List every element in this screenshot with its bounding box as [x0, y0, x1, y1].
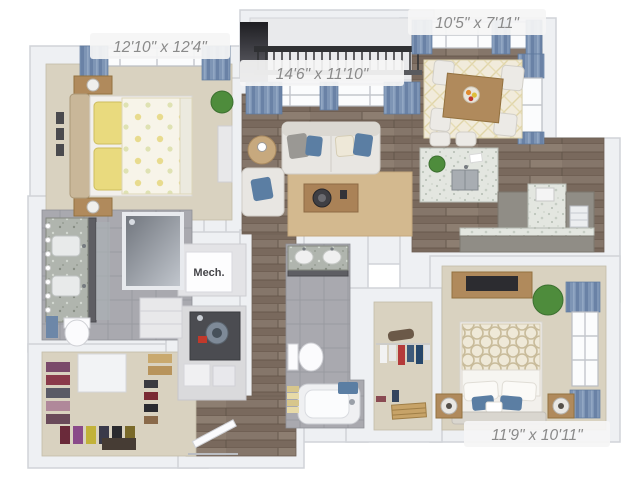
- bar-stool-1: [430, 132, 450, 146]
- label-dining: 10'5" x 7'11": [408, 9, 546, 35]
- sofa-back: [282, 122, 380, 136]
- washer-dryer: [190, 312, 240, 360]
- entry-floor: [186, 396, 296, 456]
- label-text-bedroom2: 11'9" x 10'11": [491, 427, 584, 444]
- master-faucet-2: [82, 284, 86, 288]
- balcony-railing-top: [254, 46, 422, 52]
- main-toilet-bowl: [299, 343, 323, 371]
- armchair: [242, 168, 284, 216]
- master-bed-headboard: [70, 94, 90, 198]
- closet-shoe-bench: [102, 438, 136, 450]
- master-pillow-2: [94, 148, 124, 190]
- bathtub-inner: [305, 390, 349, 418]
- master-sink-1: [52, 236, 80, 256]
- master-toilet-bowl: [65, 320, 89, 346]
- main-toilet-tank: [288, 344, 298, 370]
- bathtub-towel: [338, 382, 358, 394]
- shower: [124, 214, 182, 288]
- closet2-bench-top: [392, 403, 427, 419]
- main-faucet-1: [302, 247, 305, 250]
- living-curtain-middle: [320, 82, 338, 110]
- label-text-master: 12'10" x 12'4": [113, 39, 208, 56]
- coffee-table-tray-inner: [318, 194, 326, 202]
- floorplan-svg: Mech. 12'10" x 12'4" 14'6" x 11'10" 10'5…: [0, 0, 640, 480]
- mech-label: Mech.: [193, 267, 224, 279]
- microwave: [536, 188, 554, 201]
- master-bath-towels: [46, 316, 58, 338]
- closet2-bench: [392, 403, 427, 419]
- closet2-item-2: [392, 390, 399, 402]
- master-duvet-fold: [180, 98, 192, 194]
- master-lamp-bottom: [87, 201, 99, 213]
- coffee-cup: [258, 143, 267, 152]
- label-master-bedroom: 12'10" x 12'4": [90, 33, 230, 59]
- master-faucet-1: [82, 244, 86, 248]
- living-curtain-right: [384, 82, 420, 114]
- mech-room: Mech.: [186, 252, 232, 292]
- bedroom2-duvet: [462, 324, 540, 370]
- bedroom2-lamp-right-center: [558, 403, 564, 409]
- washer-dial: [197, 315, 203, 321]
- bedroom2-pillow-blue-right: [499, 395, 522, 411]
- sofa-pillow-pattern: [335, 135, 355, 156]
- main-sink-1: [295, 250, 313, 264]
- shower-head: [129, 219, 135, 225]
- coffee-table: [304, 184, 358, 212]
- closet2-item-1: [376, 396, 386, 402]
- tv: [466, 276, 518, 291]
- bedroom2-plant: [533, 285, 563, 315]
- master-lamp-top: [87, 79, 99, 91]
- armchair-pillow: [250, 176, 274, 201]
- bedroom2-bed: [452, 322, 546, 424]
- kitchen-island: [420, 148, 498, 202]
- master-pillow-1: [94, 102, 124, 144]
- lower-counter-cabinets: [460, 236, 594, 252]
- bedroom2-pillow-lumbar: [486, 402, 502, 412]
- master-vanity-counter: [46, 218, 88, 322]
- floorplan-image: Mech. 12'10" x 12'4" 14'6" x 11'10" 10'5…: [0, 0, 640, 480]
- laundry-basket-2: [213, 366, 235, 386]
- detergent-box: [198, 336, 207, 343]
- closet-clothes-left: [46, 362, 70, 424]
- island-plant: [429, 156, 445, 172]
- living-curtain-left: [246, 82, 282, 114]
- master-sink-2: [52, 276, 80, 296]
- bedroom2-curtain-top: [566, 282, 600, 312]
- sofa-pillow-blue-right: [353, 133, 374, 157]
- label-living-room: 14'6" x 11'10": [240, 60, 404, 86]
- bar-stool-2: [456, 132, 476, 146]
- master-wardrobe: [218, 126, 232, 182]
- linen-shelf: [140, 298, 182, 338]
- coffee-table-decor: [340, 190, 347, 199]
- bedroom2-lamp-left-center: [446, 403, 452, 409]
- vanity-mirror: [96, 222, 110, 320]
- island-faucet: [464, 165, 468, 169]
- bathtub-faucet: [349, 399, 355, 405]
- label-text-dining: 10'5" x 7'11": [435, 15, 520, 32]
- island-papers: [470, 153, 483, 163]
- main-faucet-2: [330, 247, 333, 250]
- closet-cabinet: [78, 354, 126, 392]
- label-text-living: 14'6" x 11'10": [276, 66, 370, 83]
- bedroom-2: [436, 272, 600, 424]
- bathtub: [298, 382, 360, 424]
- washer-door-inner: [212, 328, 222, 338]
- master-plant: [211, 91, 233, 113]
- dining-chair-2: [500, 65, 524, 91]
- sofa-pillow-blue-left: [305, 135, 323, 157]
- sofa: [282, 122, 380, 174]
- laundry-basket-1: [184, 364, 210, 386]
- label-bedroom2: 11'9" x 10'11": [464, 421, 610, 447]
- dining-area: [412, 20, 544, 144]
- wall-art-frames: [56, 112, 64, 156]
- main-sink-2: [323, 250, 341, 264]
- lower-counter-top: [460, 228, 594, 236]
